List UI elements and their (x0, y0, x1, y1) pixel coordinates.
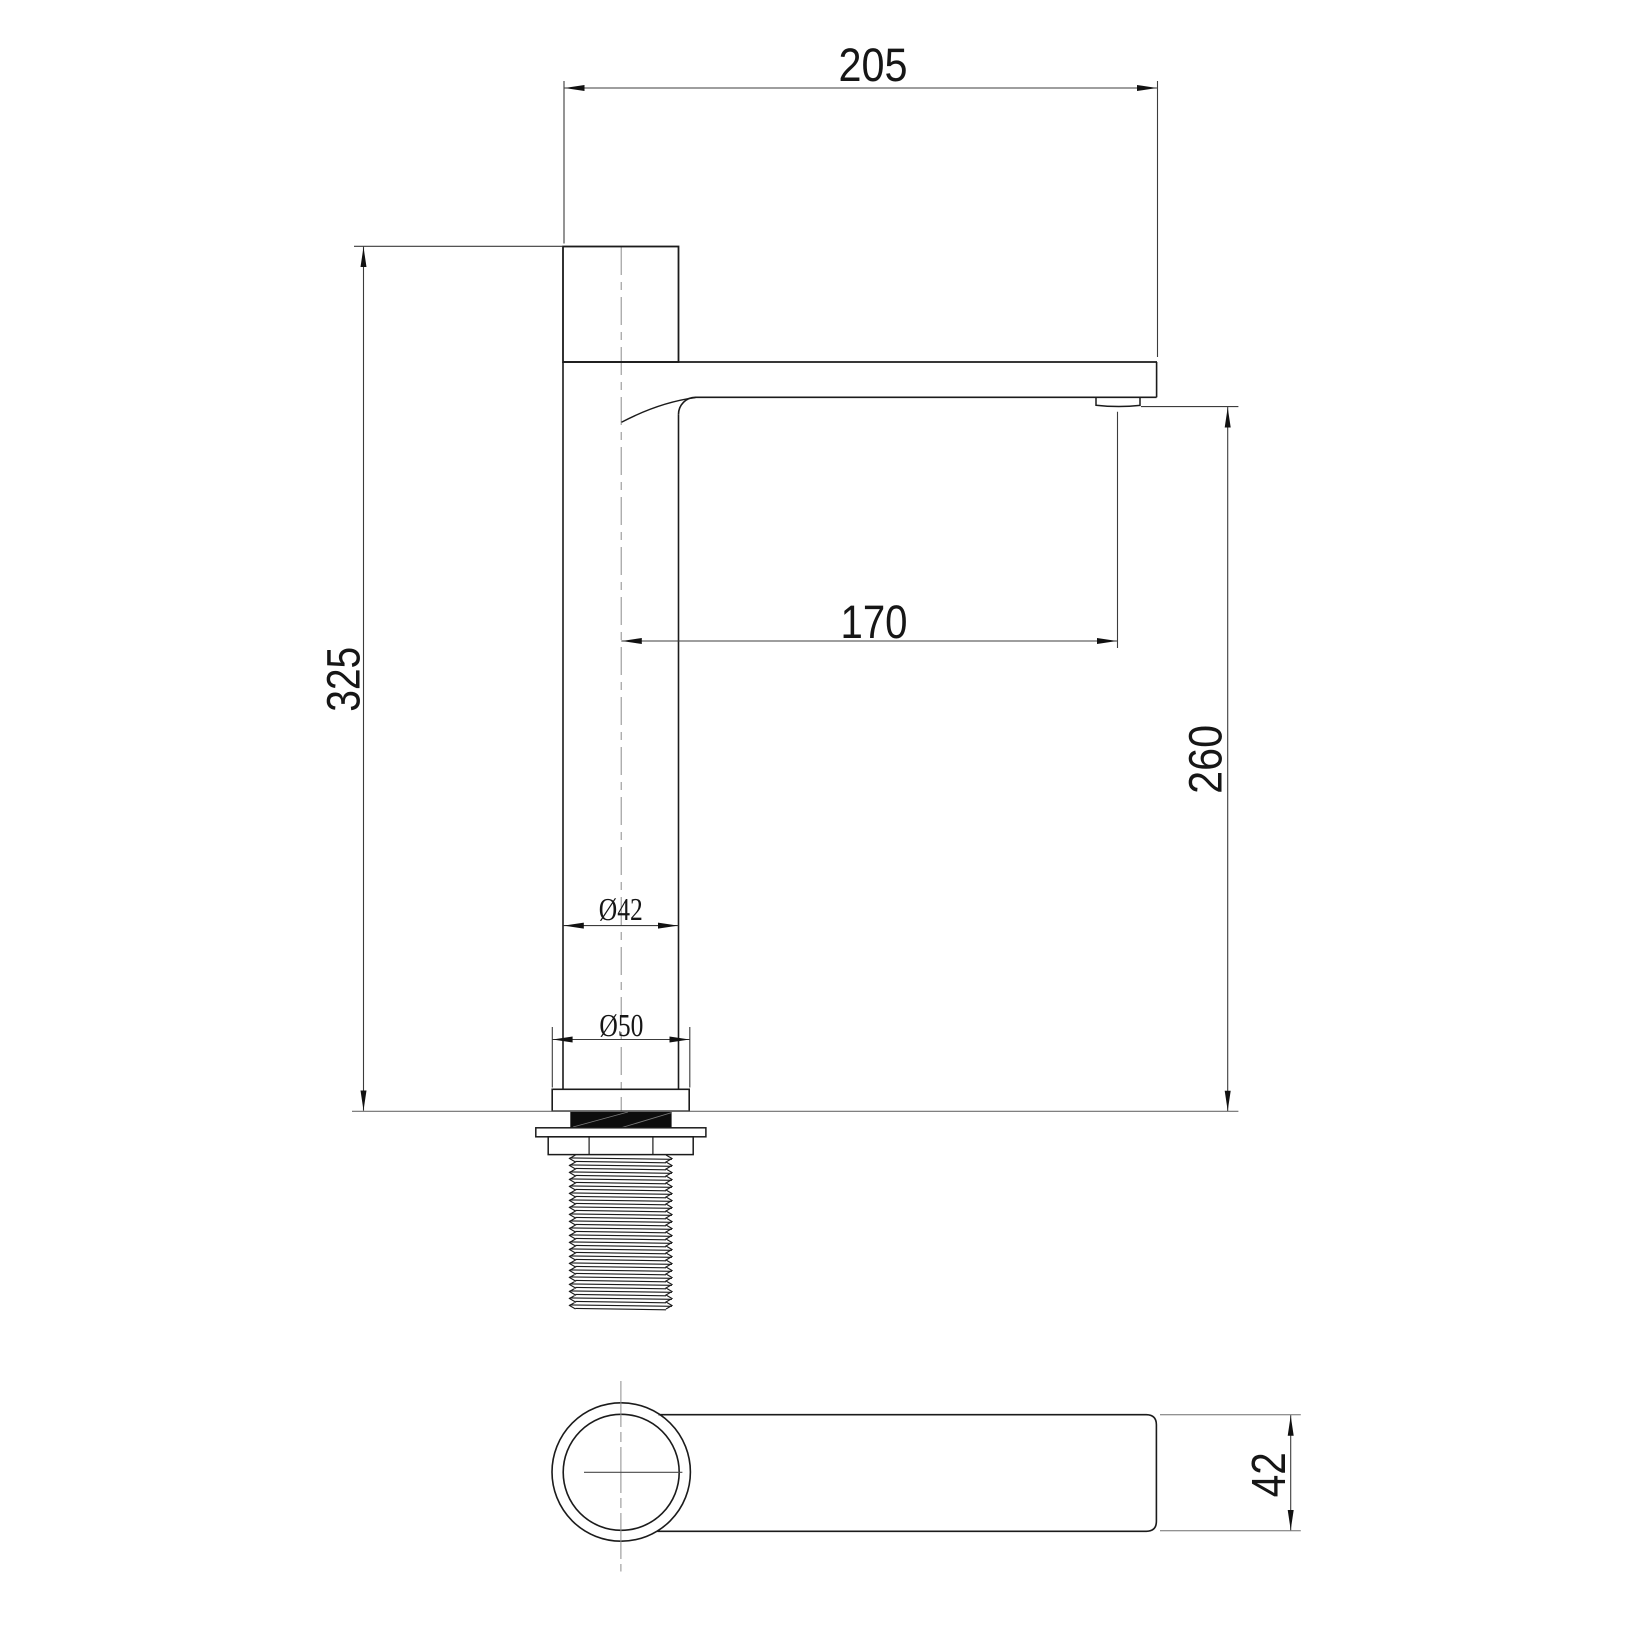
svg-text:205: 205 (839, 38, 908, 91)
svg-text:42: 42 (1243, 1452, 1296, 1497)
svg-text:Ø42: Ø42 (599, 891, 643, 927)
svg-text:325: 325 (317, 647, 370, 712)
svg-text:260: 260 (1179, 725, 1232, 794)
svg-text:170: 170 (841, 595, 908, 648)
svg-text:Ø50: Ø50 (599, 1007, 643, 1043)
